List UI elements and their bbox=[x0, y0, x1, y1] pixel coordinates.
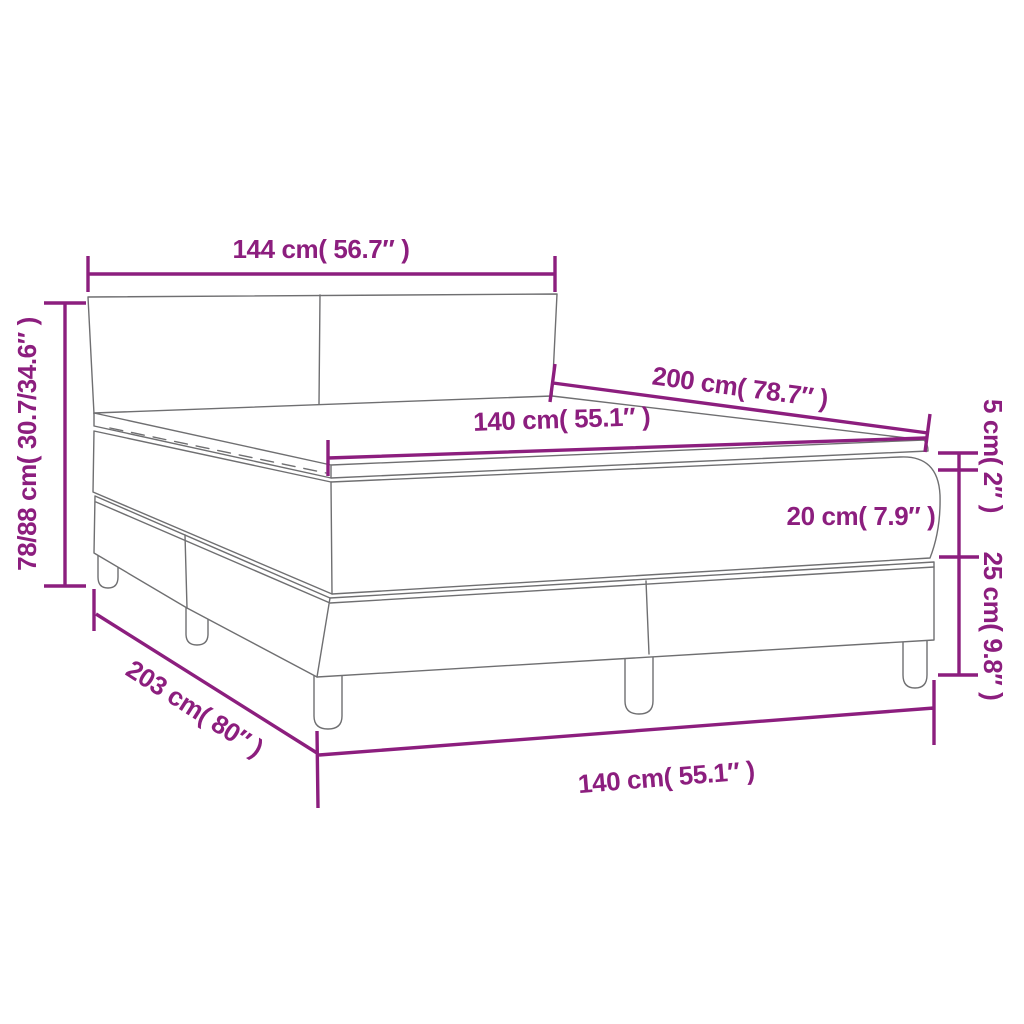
dim-right-heights: 5 cm( 2″ ) 25 cm( 9.8″ ) bbox=[938, 399, 1008, 700]
dim-height-range-line bbox=[44, 303, 86, 586]
dim-headboard-width: 144 cm( 56.7″ ) bbox=[88, 234, 555, 292]
dim-mattress-width-top-label: 140 cm( 55.1″ ) bbox=[473, 401, 651, 437]
dim-mattress-height-label: 20 cm( 7.9″ ) bbox=[787, 501, 936, 531]
dim-base-height-label: 25 cm( 9.8″ ) bbox=[978, 552, 1008, 701]
dim-topper-height-label: 5 cm( 2″ ) bbox=[978, 399, 1008, 513]
headboard-outline bbox=[88, 294, 557, 414]
dim-bed-width-bottom-label: 140 cm( 55.1″ ) bbox=[577, 755, 756, 799]
dim-height-range-label: 78/88 cm( 30.7/34.6″ ) bbox=[12, 317, 42, 571]
leg-foot-middle bbox=[625, 652, 653, 714]
dim-right-heights-line bbox=[938, 453, 979, 675]
dim-height-range: 78/88 cm( 30.7/34.6″ ) bbox=[12, 303, 86, 586]
bed-dimension-diagram: 144 cm( 56.7″ ) 78/88 cm( 30.7/34.6″ ) 2… bbox=[0, 0, 1024, 1024]
dimension-diagram-canvas: 144 cm( 56.7″ ) 78/88 cm( 30.7/34.6″ ) 2… bbox=[0, 0, 1024, 1024]
dim-mattress-height: 20 cm( 7.9″ ) bbox=[787, 501, 936, 531]
headboard-divider-seam bbox=[319, 295, 320, 404]
dim-mattress-length-label: 200 cm( 78.7″ ) bbox=[650, 361, 829, 414]
mattress-near-corner-edge bbox=[331, 482, 332, 594]
dim-headboard-width-label: 144 cm( 56.7″ ) bbox=[232, 234, 409, 264]
